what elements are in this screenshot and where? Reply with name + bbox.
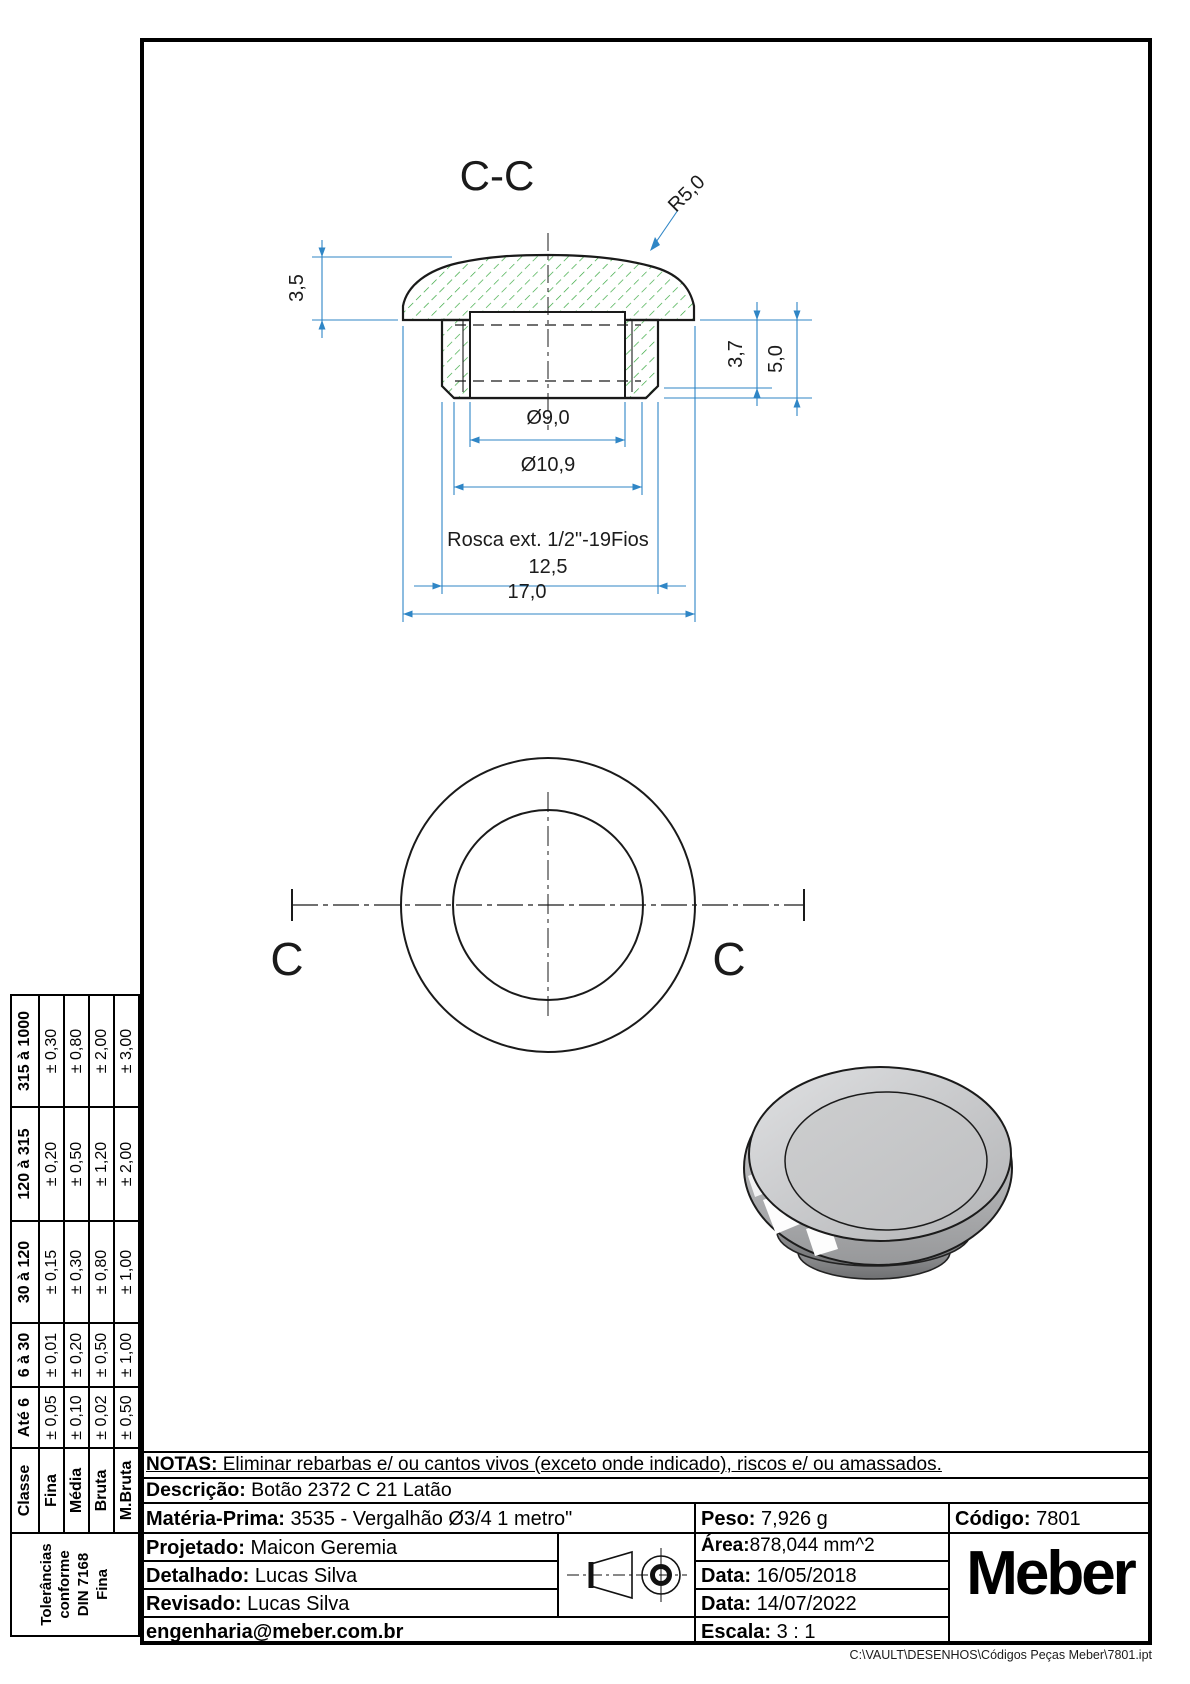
tolerance-value-cell: ± 0,80 — [64, 995, 89, 1107]
tolerance-value-cell: ± 0,50 — [64, 1107, 89, 1221]
titleblock-line — [694, 1502, 696, 1645]
tolerance-header-cell: Até 6 — [11, 1387, 39, 1448]
code-value: 7801 — [1031, 1508, 1081, 1530]
tolerance-footer-line: Tolerâncias — [38, 1534, 57, 1635]
tolerance-table: Classe Até 6 6 à 30 30 à 120 120 à 315 3… — [10, 994, 140, 1534]
tolerance-value-cell: ± 0,50 — [114, 1387, 139, 1448]
tolerance-value-cell: ± 1,00 — [114, 1323, 139, 1387]
tolerance-value-cell: ± 0,50 — [89, 1323, 114, 1387]
tolerance-header-cell: 315 à 1000 — [11, 995, 39, 1107]
tolerance-value-cell: ± 0,02 — [89, 1387, 114, 1448]
tolerance-value-cell: ± 0,10 — [64, 1387, 89, 1448]
tolerance-value-cell: ± 1,00 — [114, 1221, 139, 1323]
description-value: Botão 2372 C 21 Latão — [246, 1479, 452, 1501]
section-view: C-C — [286, 152, 812, 622]
tolerance-row: M.Bruta ± 0,50 ± 1,00 ± 1,00 ± 2,00 ± 3,… — [114, 995, 139, 1533]
tolerance-header-cell: 30 à 120 — [11, 1221, 39, 1323]
cut-label-left: C — [270, 933, 303, 985]
titleblock-line — [140, 1560, 559, 1562]
dim-r5-0: R5,0 — [664, 171, 709, 216]
tolerance-value-cell: ± 3,00 — [114, 995, 139, 1107]
top-view: C C — [270, 758, 804, 1052]
tolerance-footer: Tolerâncias conforme DIN 7168 Fina — [10, 1534, 140, 1637]
tolerance-value-cell: ± 0,20 — [39, 1107, 64, 1221]
tolerance-header-cell: 120 à 315 — [11, 1107, 39, 1221]
tolerance-row: Fina ± 0,05 ± 0,01 ± 0,15 ± 0,20 ± 0,30 — [39, 995, 64, 1533]
weight-cell: Peso: 7,926 g — [701, 1508, 828, 1530]
date1-cell: Data: 16/05/2018 — [701, 1565, 857, 1587]
company-logo: Meber — [950, 1538, 1150, 1609]
code-label: Código: — [955, 1508, 1031, 1530]
dim-3-7: 3,7 — [725, 340, 747, 368]
dim-5-0: 5,0 — [765, 345, 787, 373]
tolerance-value-cell: ± 0,30 — [39, 995, 64, 1107]
tolerance-value-cell: ± 2,00 — [89, 995, 114, 1107]
titleblock-line — [557, 1532, 559, 1618]
notes-text: Eliminar rebarbas e/ ou cantos vivos (ex… — [217, 1454, 941, 1475]
area-value: 878,044 mm^2 — [750, 1535, 875, 1556]
reviewer-label: Revisado: — [146, 1593, 242, 1615]
designer-cell: Projetado: Maicon Geremia — [146, 1537, 397, 1559]
designer-label: Projetado: — [146, 1537, 245, 1559]
tolerance-header-cell: 6 à 30 — [11, 1323, 39, 1387]
dim-12-5: 12,5 — [529, 556, 568, 578]
titleblock-line — [140, 1532, 1152, 1534]
reviewer-cell: Revisado: Lucas Silva — [146, 1593, 349, 1615]
tolerance-value-cell: ± 1,20 — [89, 1107, 114, 1221]
tolerance-class-cell: Fina — [39, 1448, 64, 1533]
area-cell: Área:878,044 mm^2 — [701, 1536, 875, 1557]
tolerance-value-cell: ± 0,01 — [39, 1323, 64, 1387]
titleblock-line — [140, 1616, 948, 1618]
date2-cell: Data: 14/07/2022 — [701, 1593, 857, 1615]
tolerance-value-cell: ± 0,15 — [39, 1221, 64, 1323]
email-cell: engenharia@meber.com.br — [146, 1621, 403, 1643]
code-cell: Código: 7801 — [955, 1508, 1081, 1530]
titleblock-line — [140, 1588, 559, 1590]
notes-label: NOTAS: — [146, 1454, 217, 1475]
tolerance-footer-line: conforme — [56, 1534, 75, 1635]
thread-note: Rosca ext. 1/2"-19Fios — [447, 529, 649, 551]
date2-value: 14/07/2022 — [751, 1593, 857, 1615]
description-label: Descrição: — [146, 1479, 246, 1501]
email-value: engenharia@meber.com.br — [146, 1621, 403, 1643]
date1-value: 16/05/2018 — [751, 1565, 857, 1587]
titleblock-line — [694, 1560, 948, 1562]
titleblock-line — [694, 1588, 948, 1590]
tolerance-header-cell: Classe — [11, 1448, 39, 1533]
tolerance-value-cell: ± 2,00 — [114, 1107, 139, 1221]
tolerance-row: Média ± 0,10 ± 0,20 ± 0,30 ± 0,50 ± 0,80 — [64, 995, 89, 1533]
detailer-label: Detalhado: — [146, 1565, 249, 1587]
engineering-drawing-page: { "drawing": { "section_label": "C-C", "… — [0, 0, 1190, 1684]
tolerance-class-cell: Média — [64, 1448, 89, 1533]
material-label: Matéria-Prima: — [146, 1508, 285, 1530]
tolerance-footer-line: Fina — [94, 1534, 113, 1635]
detailer-cell: Detalhado: Lucas Silva — [146, 1565, 357, 1587]
tolerance-value-cell: ± 0,80 — [89, 1221, 114, 1323]
tolerance-footer-line: DIN 7168 — [75, 1534, 94, 1635]
tolerance-class-cell: M.Bruta — [114, 1448, 139, 1533]
scale-value: 3 : 1 — [771, 1621, 815, 1643]
section-title: C-C — [460, 152, 535, 199]
titleblock-line — [140, 1502, 1152, 1504]
reviewer-value: Lucas Silva — [242, 1593, 350, 1615]
part-render-3d — [744, 1067, 1012, 1279]
dim-dia-9-0: Ø9,0 — [526, 407, 569, 429]
dim-dia-10-9: Ø10,9 — [521, 454, 575, 476]
tolerance-value-cell: ± 0,05 — [39, 1387, 64, 1448]
file-path: C:\VAULT\DESENHOS\Códigos Peças Meber\78… — [640, 1648, 1152, 1662]
tolerance-value-cell: ± 0,30 — [64, 1221, 89, 1323]
weight-value: 7,926 g — [755, 1508, 827, 1530]
description-row: Descrição: Botão 2372 C 21 Latão — [146, 1480, 452, 1501]
titleblock-line — [140, 1451, 1152, 1453]
material-value: 3535 - Vergalhão Ø3/4 1 metro" — [285, 1508, 572, 1530]
tolerance-class-cell: Bruta — [89, 1448, 114, 1533]
date2-label: Data: — [701, 1593, 751, 1615]
projection-symbol — [561, 1535, 693, 1615]
weight-label: Peso: — [701, 1508, 755, 1530]
tolerance-value-cell: ± 0,20 — [64, 1323, 89, 1387]
tolerance-row: Bruta ± 0,02 ± 0,50 ± 0,80 ± 1,20 ± 2,00 — [89, 995, 114, 1533]
tolerance-table-rotated: Tolerâncias conforme DIN 7168 Fina Class… — [10, 990, 140, 1637]
designer-value: Maicon Geremia — [245, 1537, 397, 1559]
detailer-value: Lucas Silva — [249, 1565, 357, 1587]
drawing-canvas: C-C — [140, 38, 1152, 1645]
dim-3-5: 3,5 — [286, 274, 308, 302]
tolerance-header-row: Classe Até 6 6 à 30 30 à 120 120 à 315 3… — [11, 995, 39, 1533]
cut-label-right: C — [712, 933, 745, 985]
dim-17-0: 17,0 — [508, 581, 547, 603]
scale-label: Escala: — [701, 1621, 771, 1643]
date1-label: Data: — [701, 1565, 751, 1587]
scale-cell: Escala: 3 : 1 — [701, 1621, 816, 1643]
notes-row: NOTAS: Eliminar rebarbas e/ ou cantos vi… — [146, 1455, 942, 1476]
material-cell: Matéria-Prima: 3535 - Vergalhão Ø3/4 1 m… — [146, 1508, 572, 1530]
area-label: Área: — [701, 1535, 750, 1556]
